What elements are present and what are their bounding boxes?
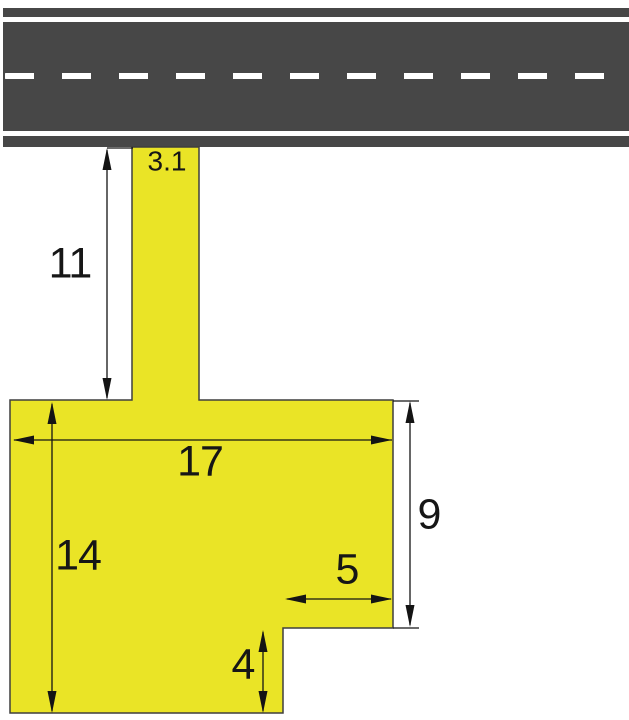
dim-11-arrow-down xyxy=(103,378,112,400)
dim-label-notch-height: 4 xyxy=(232,644,255,687)
dim-label-lot-left-height: 14 xyxy=(55,535,101,578)
dim-9-arrow-up xyxy=(406,401,415,423)
dim-label-lot-width: 17 xyxy=(177,441,223,484)
dim-label-driveway-width: 3.1 xyxy=(148,147,187,175)
diagram-svg xyxy=(0,0,629,720)
dim-9-arrow-down xyxy=(406,605,415,627)
figure-canvas: 3.1 11 17 14 9 5 4 xyxy=(0,0,629,720)
dim-label-notch-width: 5 xyxy=(336,549,359,592)
pavement-shape xyxy=(10,147,393,713)
dim-label-lot-right-height: 9 xyxy=(418,494,441,537)
dim-11-arrow-up xyxy=(103,148,112,170)
dim-label-driveway-length: 11 xyxy=(49,243,92,286)
